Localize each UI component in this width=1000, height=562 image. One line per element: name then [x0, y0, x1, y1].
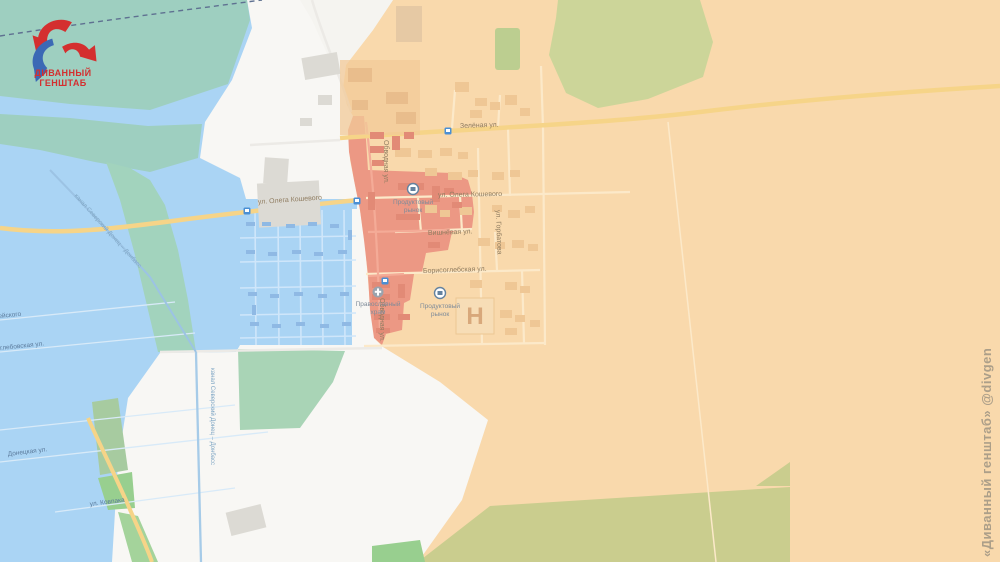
church-label-line2: храм	[371, 309, 386, 316]
green-plot-north	[495, 28, 520, 70]
canal-label-vertical: канал Северский Донец – Донбасс	[209, 368, 216, 465]
hospital-building: Н	[456, 298, 494, 334]
logo-text-line1: ДИВАННЫЙ	[35, 67, 92, 78]
hospital-letter: Н	[466, 303, 483, 330]
market-icon	[408, 184, 419, 195]
market1-label-line1: Продуктовый	[393, 198, 433, 206]
street-label-zelenaya: Зелёная ул.	[460, 122, 499, 130]
bus-stop-icon	[382, 278, 389, 285]
street-label-kosheviy-east: ул. Олега Кошевого	[438, 191, 502, 199]
map-screenshot: Н Зелёная ул. ул. Олега Кошевого ул. Оле…	[0, 0, 1000, 562]
situation-map: Н Зелёная ул. ул. Олега Кошевого ул. Оле…	[0, 0, 1000, 562]
street-label-obvodnaya-1: Обводная ул.	[382, 140, 390, 184]
market-icon	[435, 288, 446, 299]
logo-text-line2: ГЕНШТАБ	[39, 78, 86, 88]
market2-label-line2: рынок	[431, 311, 449, 318]
watermark-text: «Диванный генштаб» @divgen	[979, 348, 994, 557]
street-label-gorbatova: ул. Горбатова	[494, 210, 504, 255]
market1-label-line2: рынок	[404, 207, 422, 214]
bus-stop-icon	[244, 208, 251, 215]
church-label-line1: Православный	[356, 300, 401, 308]
bus-stop-icon	[445, 128, 452, 135]
market2-label-line1: Продуктовый	[420, 302, 460, 310]
bus-stop-icon	[354, 198, 361, 205]
church-icon	[373, 287, 384, 298]
